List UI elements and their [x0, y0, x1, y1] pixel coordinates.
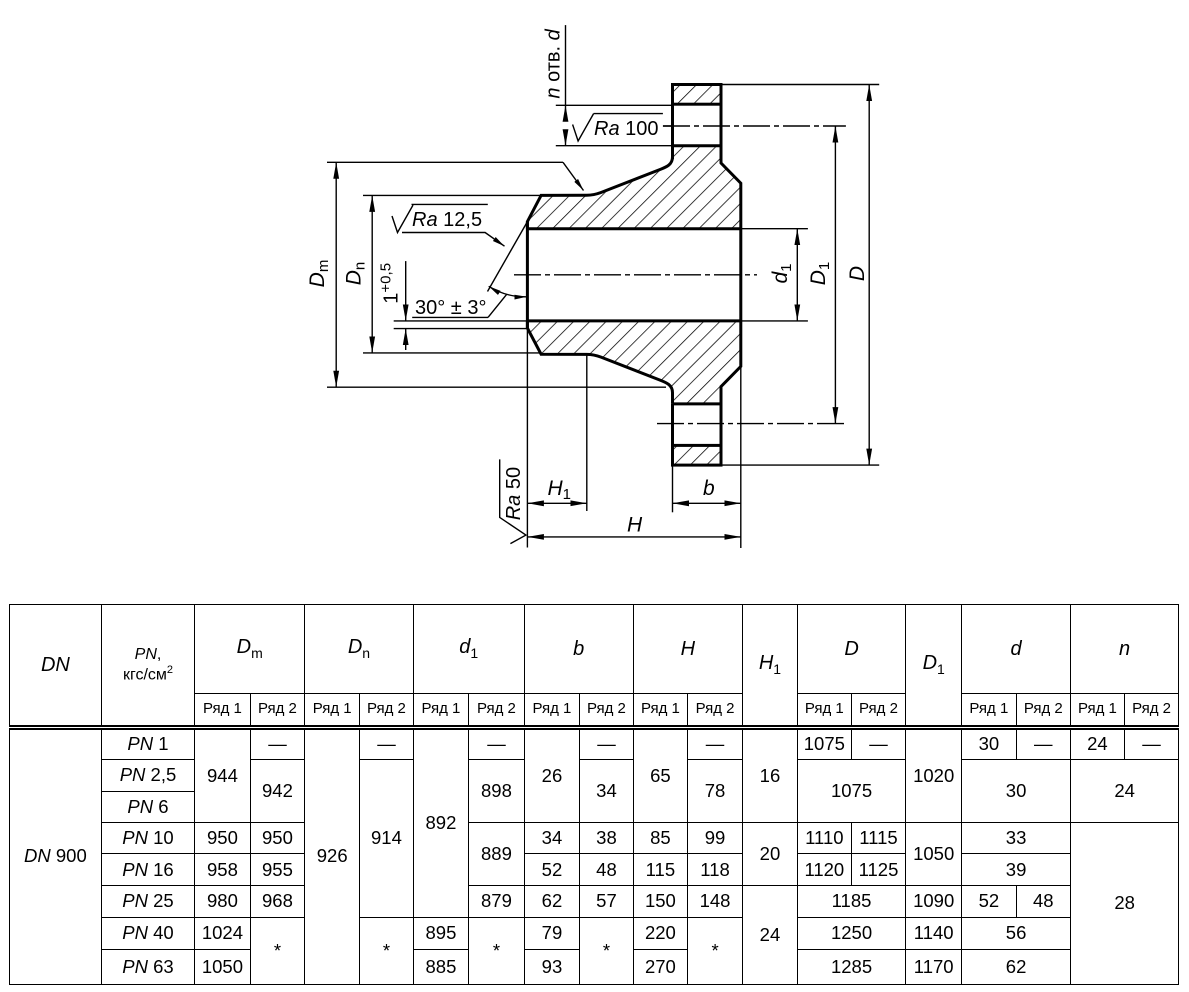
svg-text:D: D	[846, 266, 869, 281]
svg-text:1+0,5: 1+0,5	[378, 263, 403, 304]
svg-text:30° ± 3°: 30° ± 3°	[415, 297, 486, 319]
svg-text:Ra 12,5: Ra 12,5	[412, 209, 482, 231]
svg-text:b: b	[703, 477, 715, 500]
svg-text:n отв. d: n отв. d	[543, 28, 565, 98]
svg-text:H: H	[627, 514, 643, 537]
svg-text:d1: d1	[769, 263, 795, 283]
svg-text:Ra 50: Ra 50	[503, 467, 525, 520]
svg-text:H1: H1	[548, 477, 572, 503]
svg-text:Dn: Dn	[343, 262, 369, 286]
svg-text:Dm: Dm	[306, 260, 332, 288]
svg-text:Ra 100: Ra 100	[594, 118, 659, 140]
svg-text:D1: D1	[807, 262, 833, 286]
